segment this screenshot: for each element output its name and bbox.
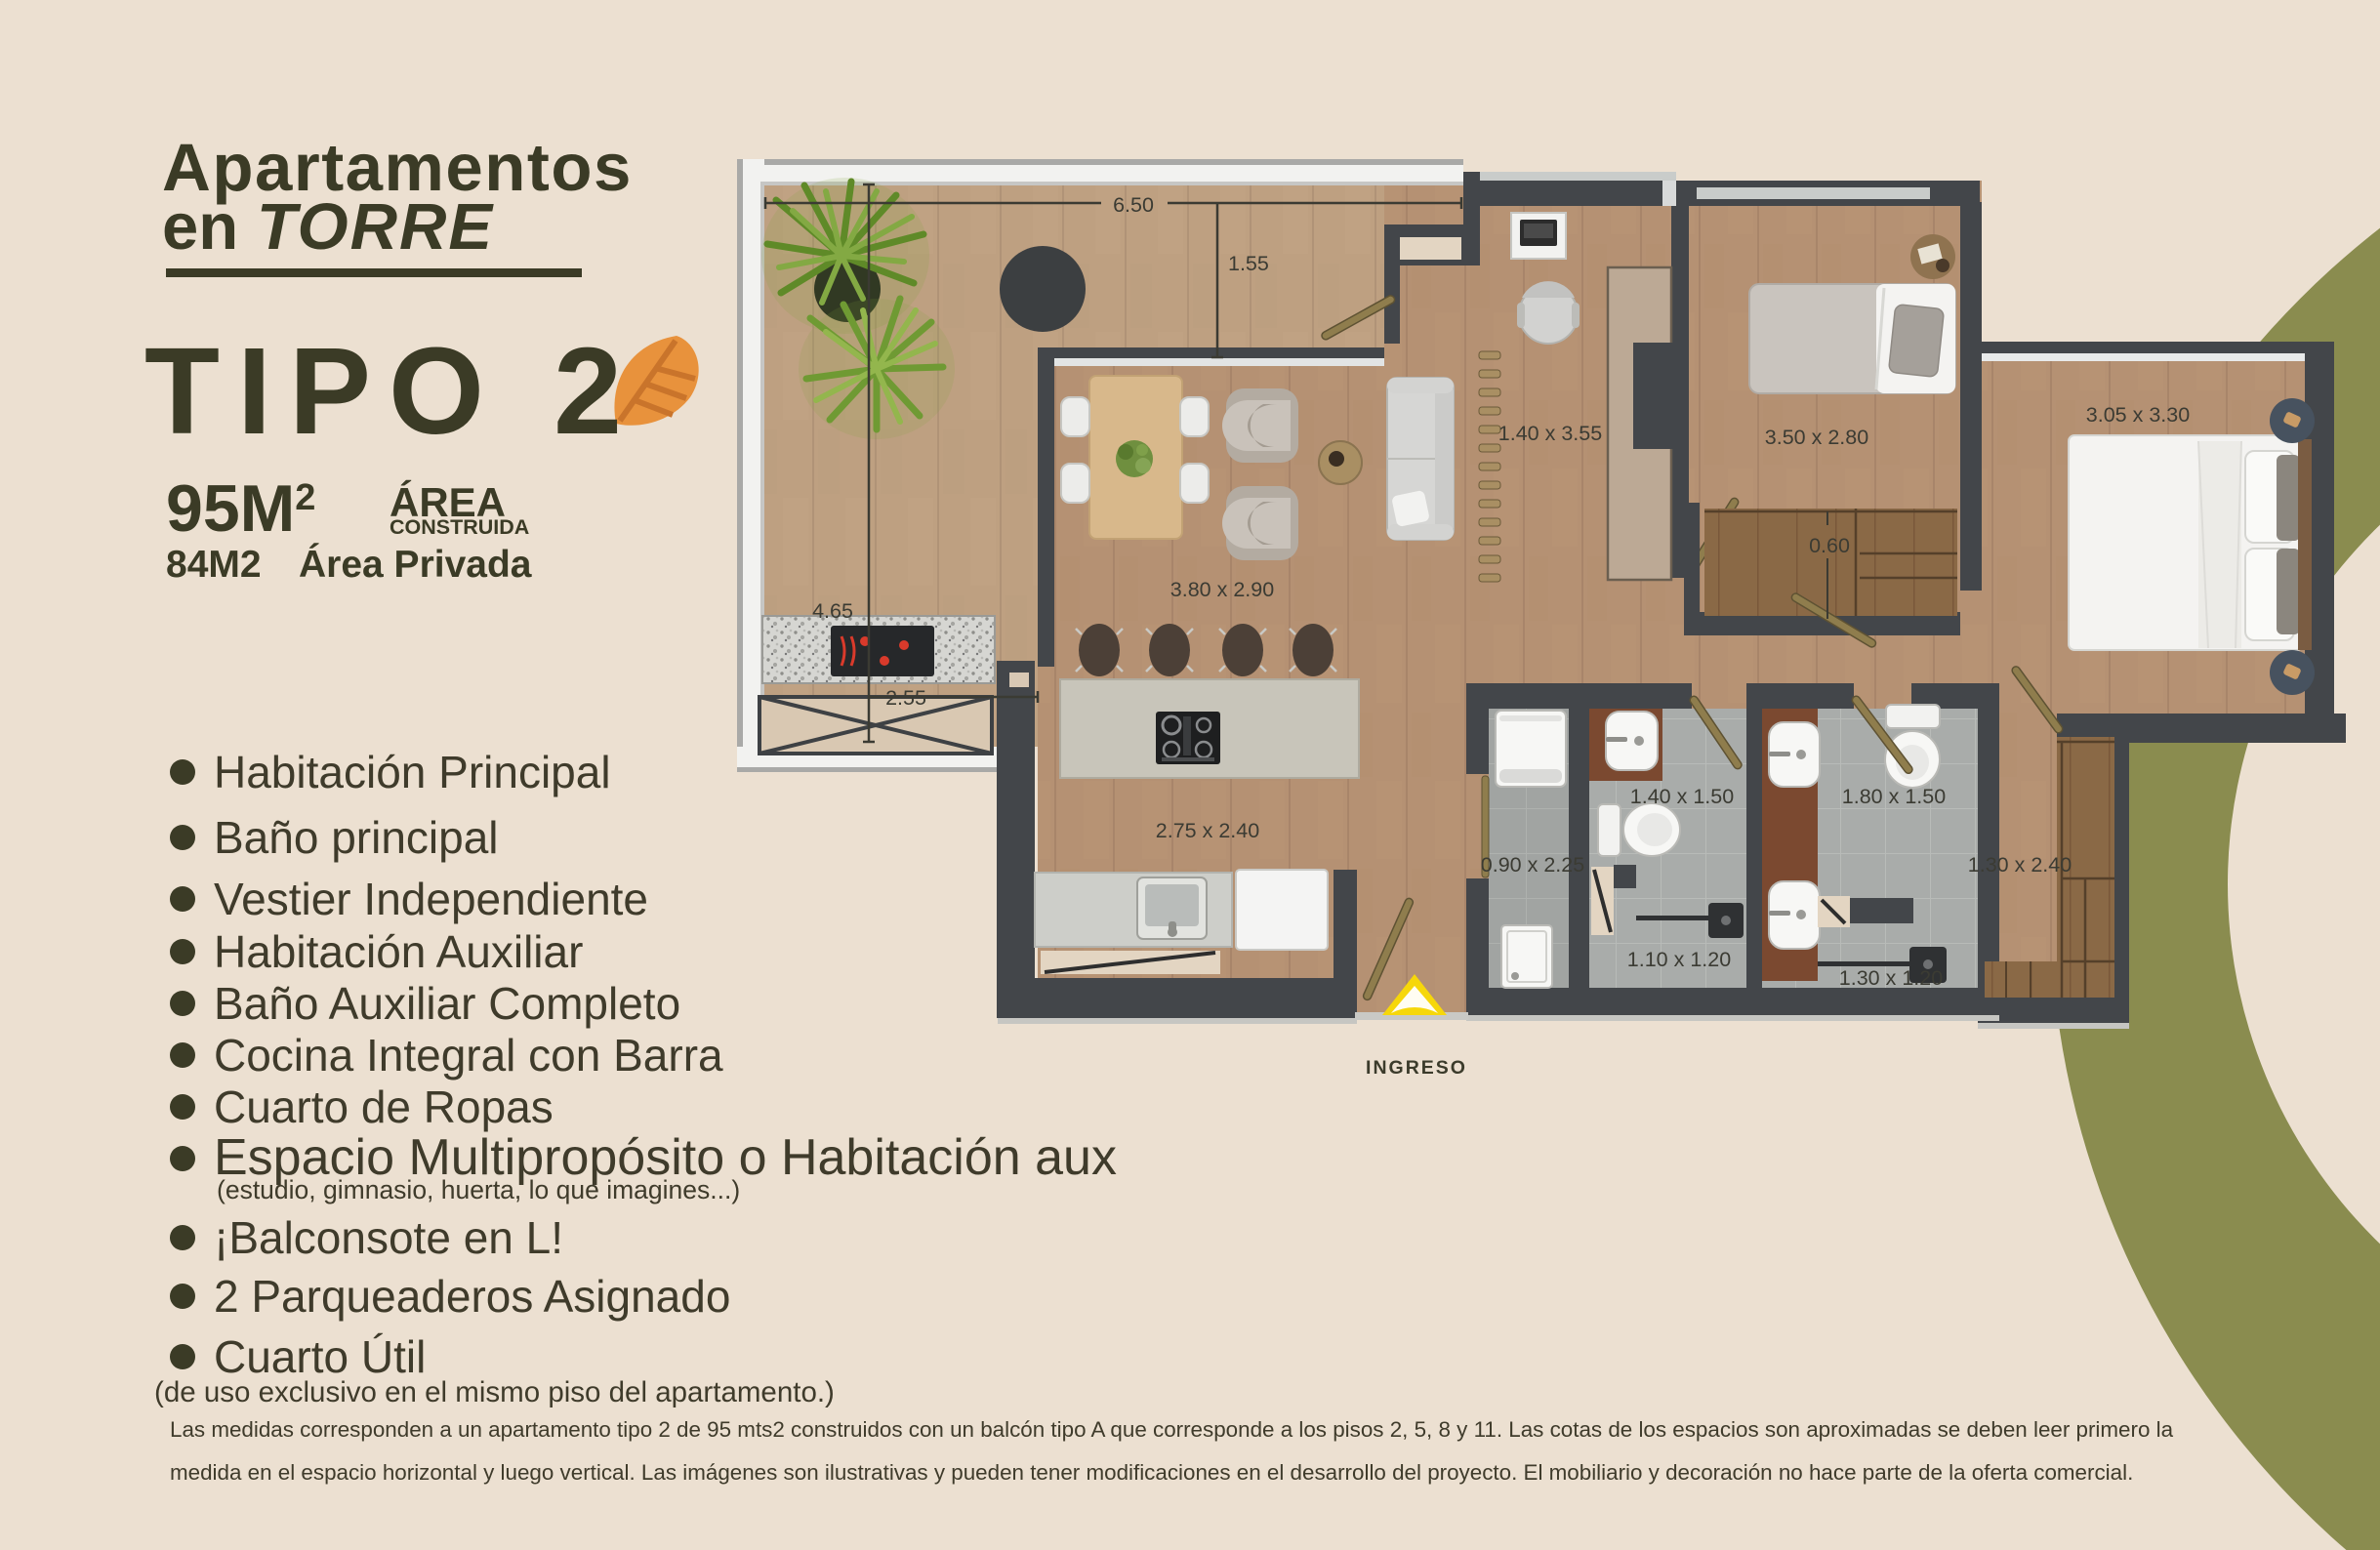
svg-text:1.40 x 1.50: 1.40 x 1.50 [1630, 785, 1734, 808]
svg-text:2.75 x 2.40: 2.75 x 2.40 [1156, 819, 1259, 842]
svg-text:Vestier Independiente: Vestier Independiente [214, 874, 648, 924]
svg-text:2 Parqueaderos Asignado: 2 Parqueaderos Asignado [214, 1271, 730, 1322]
svg-text:INGRESO: INGRESO [1366, 1057, 1467, 1079]
svg-text:6.50: 6.50 [1113, 193, 1154, 217]
svg-text:1.30 x 2.40: 1.30 x 2.40 [1968, 853, 2072, 877]
svg-text:TIPO 2: TIPO 2 [144, 322, 639, 460]
svg-text:3.50 x 2.80: 3.50 x 2.80 [1765, 426, 1868, 449]
svg-text:Habitación Principal: Habitación Principal [214, 747, 611, 797]
svg-text:0.60: 0.60 [1809, 534, 1850, 557]
svg-text:1.10 x 1.20: 1.10 x 1.20 [1627, 948, 1731, 971]
svg-text:1.30 x 1.20: 1.30 x 1.20 [1839, 966, 1943, 990]
svg-text:1.80 x 1.50: 1.80 x 1.50 [1842, 785, 1946, 808]
svg-text:(estudio, gimnasio, huerta, lo: (estudio, gimnasio, huerta, lo que imagi… [217, 1175, 740, 1204]
svg-text:Baño Auxiliar Completo: Baño Auxiliar Completo [214, 978, 680, 1029]
svg-text:0.90 x 2.25: 0.90 x 2.25 [1481, 853, 1584, 877]
svg-text:Área Privada: Área Privada [299, 543, 532, 586]
svg-text:Las medidas corresponden a un: Las medidas corresponden a un apartament… [170, 1417, 2174, 1442]
svg-text:3.05 x 3.30: 3.05 x 3.30 [2086, 403, 2190, 427]
svg-text:(de uso exclusivo en el mismo: (de uso exclusivo en el mismo piso del a… [154, 1376, 835, 1408]
svg-text:3.80 x 2.90: 3.80 x 2.90 [1170, 578, 1274, 601]
svg-text:2.55: 2.55 [885, 686, 926, 710]
svg-text:Baño principal: Baño principal [214, 812, 499, 863]
svg-text:Habitación Auxiliar: Habitación Auxiliar [214, 926, 583, 977]
svg-text:1.55: 1.55 [1228, 252, 1269, 275]
svg-text:en TORRE: en TORRE [162, 190, 494, 264]
svg-text:4.65: 4.65 [812, 599, 853, 623]
svg-text:Cuarto Útil: Cuarto Útil [214, 1331, 426, 1382]
svg-text:1.40 x 3.55: 1.40 x 3.55 [1498, 422, 1602, 445]
svg-text:¡Balconsote en L!: ¡Balconsote en L! [214, 1212, 563, 1263]
svg-text:CONSTRUIDA: CONSTRUIDA [390, 515, 529, 539]
svg-text:Cocina Integral con Barra: Cocina Integral con Barra [214, 1030, 723, 1081]
svg-text:84M2: 84M2 [166, 544, 262, 586]
svg-text:95M2: 95M2 [166, 471, 315, 546]
svg-text:medida en el espacio horizonta: medida en el espacio horizontal y luego … [170, 1460, 2133, 1485]
svg-text:Cuarto de Ropas: Cuarto de Ropas [214, 1081, 554, 1132]
